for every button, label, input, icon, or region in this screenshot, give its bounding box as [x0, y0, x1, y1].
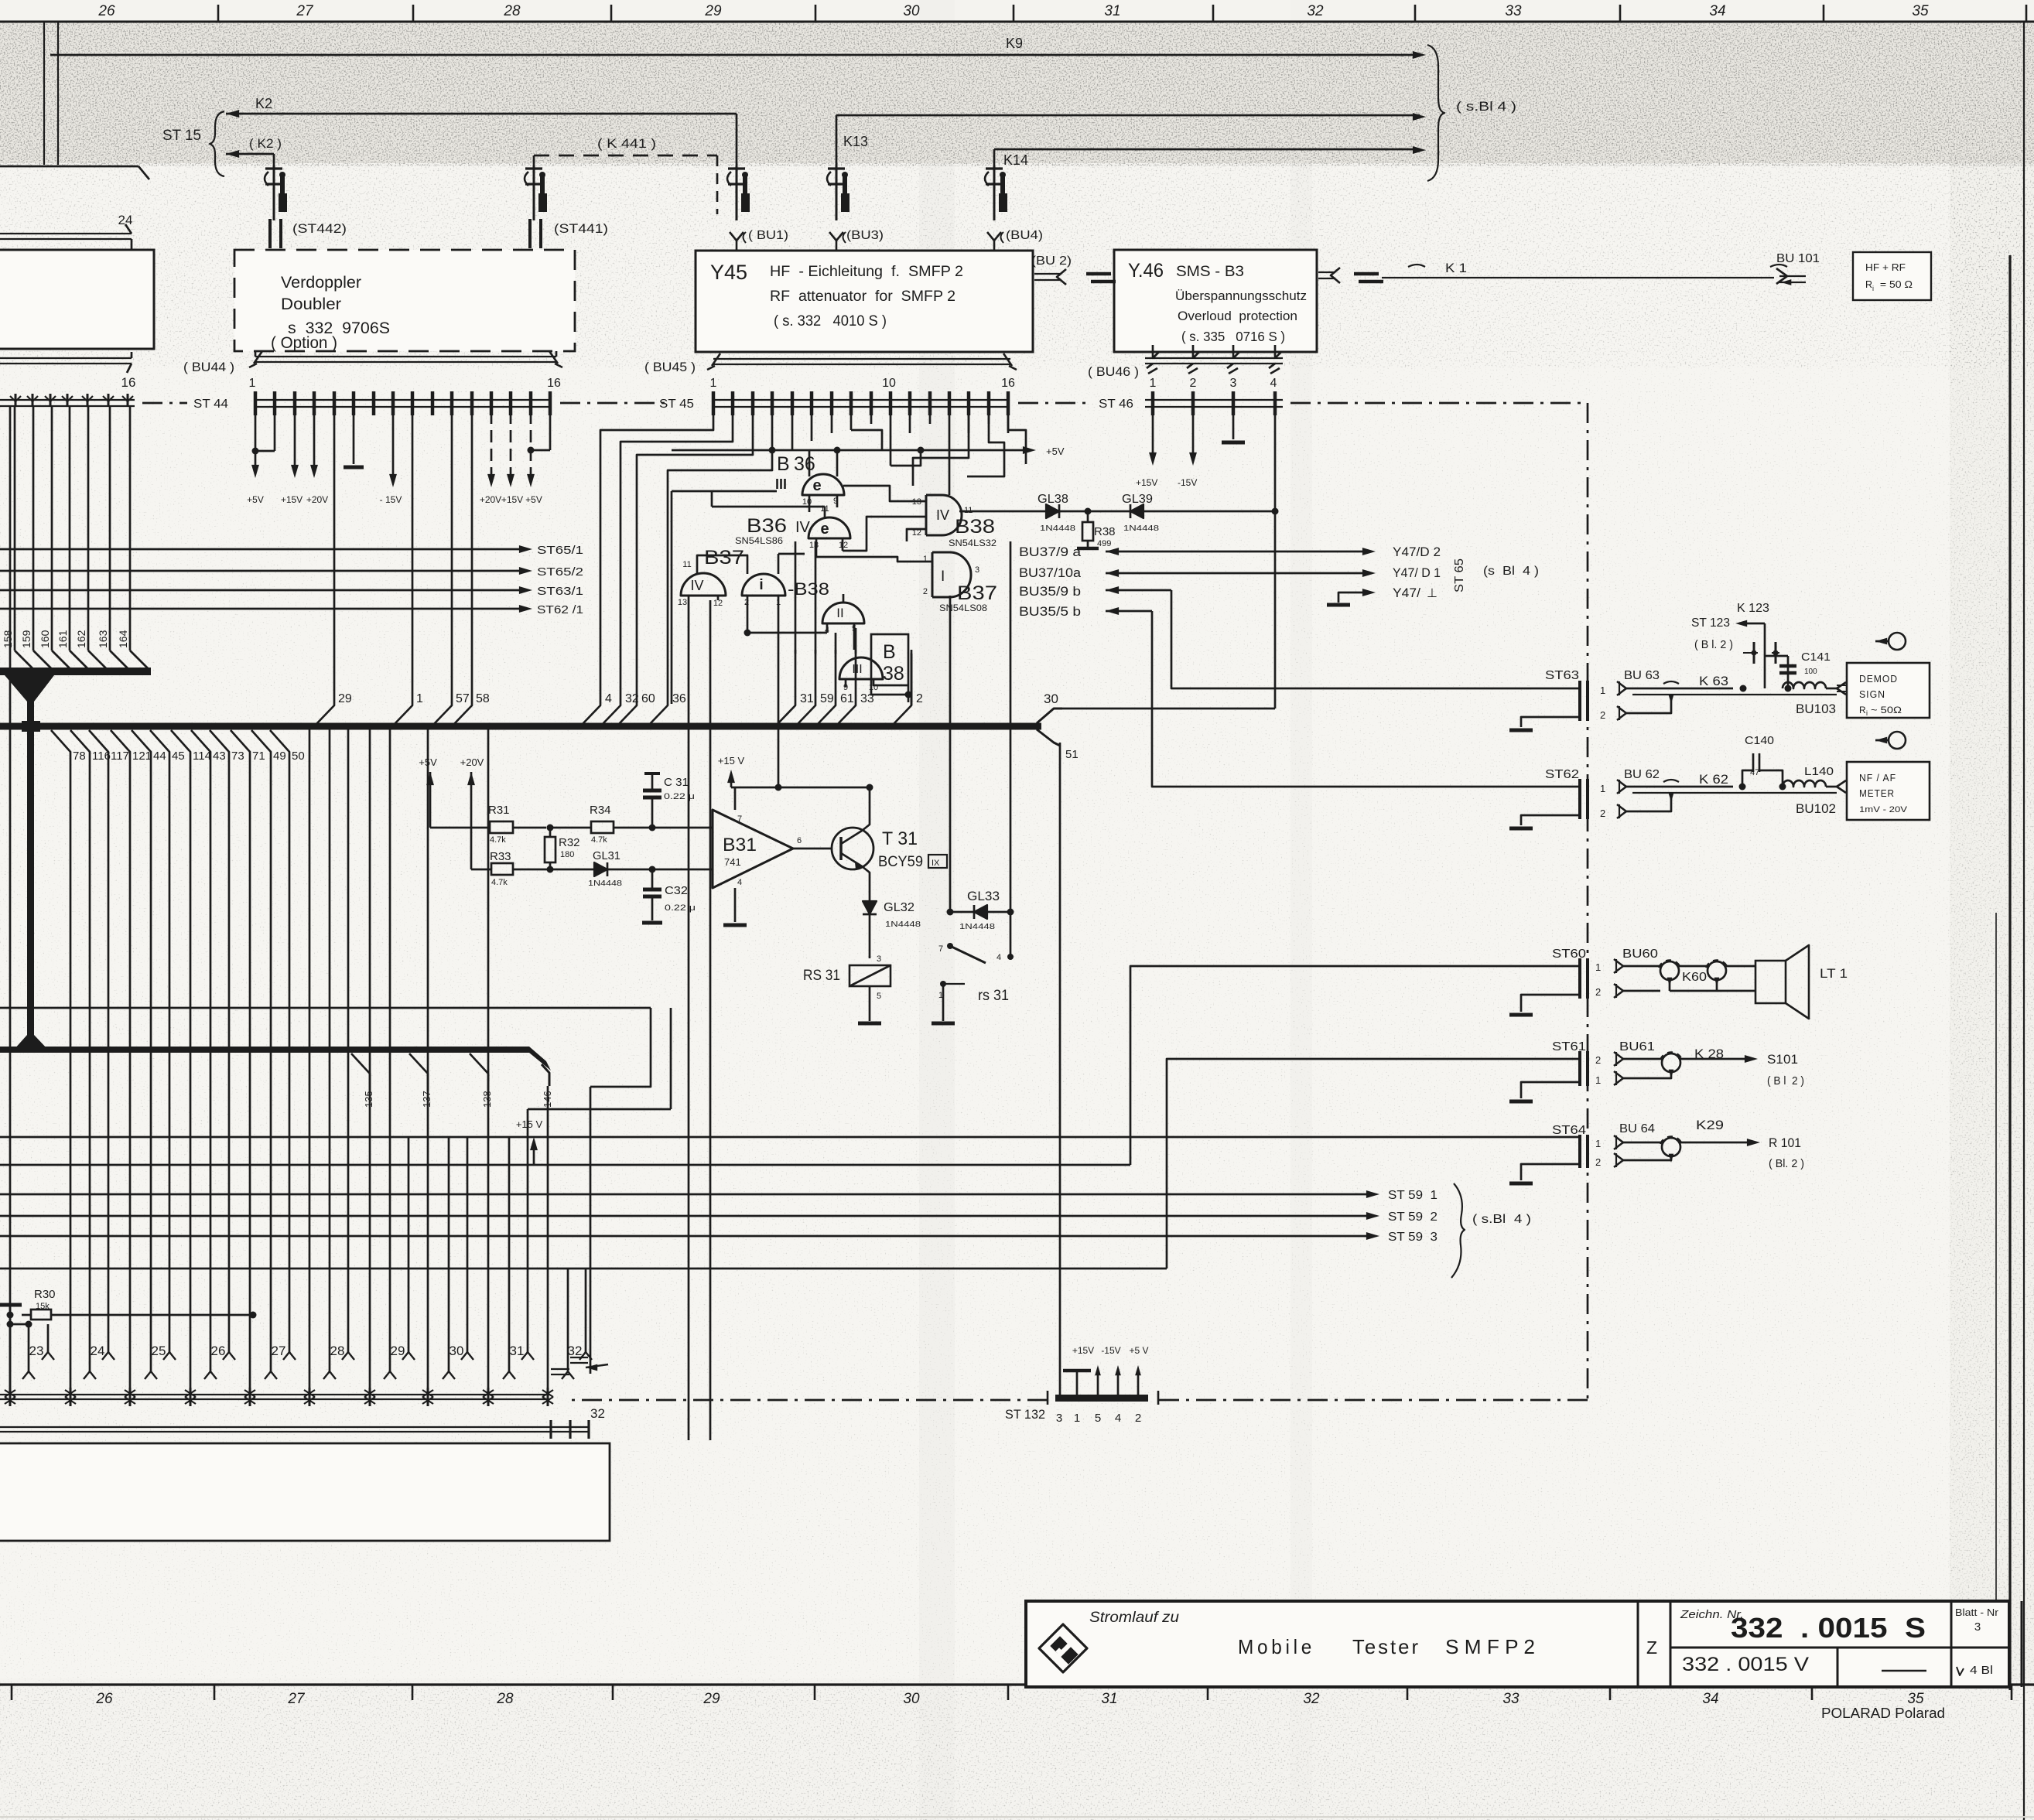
svg-text:0.22 μ: 0.22 μ	[665, 903, 696, 913]
svg-text:164: 164	[117, 630, 129, 648]
svg-text:Y.46: Y.46	[1128, 260, 1164, 282]
svg-text:BU35/5 b: BU35/5 b	[1019, 604, 1081, 619]
svg-text:23: 23	[29, 1344, 44, 1358]
svg-text:32: 32	[1307, 3, 1324, 19]
svg-text:-15V: -15V	[1101, 1345, 1120, 1356]
svg-text:73: 73	[231, 750, 244, 763]
svg-text:II: II	[836, 606, 843, 620]
svg-text:K13: K13	[843, 134, 868, 149]
svg-text:e: e	[820, 521, 829, 538]
svg-text:61: 61	[840, 692, 854, 705]
svg-text:BU35/9 b: BU35/9 b	[1019, 584, 1081, 599]
svg-text:( s.Bl 4 ): ( s.Bl 4 )	[1472, 1213, 1531, 1226]
svg-text:Verdoppler: Verdoppler	[281, 274, 361, 292]
svg-text:SN54LS08: SN54LS08	[939, 604, 987, 613]
svg-text:ST 44: ST 44	[193, 398, 228, 411]
svg-text:R: R	[1865, 279, 1872, 290]
svg-text:III: III	[852, 663, 862, 676]
svg-text:GL32: GL32	[884, 901, 914, 914]
svg-text:LT 1: LT 1	[1820, 966, 1848, 981]
svg-text:3: 3	[975, 565, 979, 575]
svg-text:( BU1): ( BU1)	[748, 229, 788, 242]
svg-text:163: 163	[97, 630, 109, 648]
svg-text:31: 31	[1104, 3, 1120, 19]
svg-text:L140: L140	[1804, 765, 1834, 778]
svg-text:51: 51	[1065, 748, 1079, 761]
svg-text:( K 441 ): ( K 441 )	[597, 136, 656, 151]
svg-text:( B l. 2 ): ( B l. 2 )	[1694, 638, 1733, 651]
svg-text:38: 38	[883, 663, 904, 685]
svg-text:3: 3	[877, 954, 881, 964]
svg-text:IV: IV	[690, 578, 703, 593]
svg-text:T 31: T 31	[882, 828, 918, 849]
svg-text:( s.Bl 4 ): ( s.Bl 4 )	[1456, 99, 1516, 114]
svg-text:2: 2	[1600, 808, 1605, 819]
svg-text:30: 30	[450, 1344, 464, 1358]
svg-text:2: 2	[1595, 986, 1601, 998]
svg-text:C 31: C 31	[664, 776, 689, 789]
svg-text:GL31: GL31	[593, 849, 620, 862]
svg-text:( B l 2 ): ( B l 2 )	[1767, 1074, 1804, 1088]
svg-text:117: 117	[111, 750, 129, 763]
svg-text:Stromlauf zu: Stromlauf zu	[1089, 1610, 1179, 1626]
svg-text:28: 28	[330, 1344, 345, 1358]
svg-text:30: 30	[903, 3, 920, 19]
svg-text:28: 28	[496, 1691, 514, 1707]
svg-text:S M F P 2: S M F P 2	[1445, 1635, 1535, 1658]
svg-text:+20V: +20V	[460, 756, 484, 768]
svg-text:e: e	[812, 477, 821, 494]
svg-text:16: 16	[547, 377, 561, 390]
svg-text:( BU46 ): ( BU46 )	[1088, 364, 1139, 379]
svg-text:K14: K14	[1003, 152, 1028, 168]
svg-text:( K2 ): ( K2 )	[249, 136, 282, 151]
svg-text:30: 30	[1044, 691, 1058, 706]
svg-text:30: 30	[903, 1691, 920, 1707]
svg-text:11: 11	[682, 560, 691, 569]
svg-text:1N4448: 1N4448	[1123, 524, 1159, 533]
svg-text:29: 29	[702, 1691, 720, 1707]
svg-text:4: 4	[1270, 377, 1277, 390]
svg-text:2: 2	[1595, 1156, 1601, 1168]
svg-text:GL33: GL33	[967, 889, 1000, 903]
svg-text:2: 2	[1600, 709, 1605, 721]
svg-text:B31: B31	[723, 835, 757, 855]
svg-text:ST 46: ST 46	[1099, 398, 1133, 411]
svg-text:ST 65: ST 65	[1453, 558, 1466, 592]
svg-text:ST 132: ST 132	[1005, 1407, 1045, 1422]
svg-text:2: 2	[1135, 1412, 1141, 1425]
svg-text:1: 1	[1595, 1074, 1601, 1086]
svg-text:K9: K9	[1006, 36, 1023, 51]
svg-text:(ST442): (ST442)	[292, 221, 347, 236]
svg-text:78: 78	[73, 750, 86, 763]
svg-text:3: 3	[1056, 1412, 1062, 1425]
svg-text:B: B	[883, 641, 896, 663]
svg-text:121: 121	[132, 750, 152, 763]
svg-text:33: 33	[1502, 1691, 1520, 1707]
svg-text:1: 1	[1150, 377, 1157, 390]
svg-text:25: 25	[152, 1344, 166, 1358]
svg-text:+15V: +15V	[501, 494, 523, 505]
svg-text:- 15V: - 15V	[380, 494, 402, 505]
svg-text:HF + RF: HF + RF	[1865, 262, 1906, 273]
svg-text:RS 31: RS 31	[803, 968, 840, 984]
svg-text:57: 57	[456, 692, 470, 705]
svg-text:Doubler: Doubler	[281, 295, 341, 313]
svg-text:27: 27	[287, 1691, 306, 1707]
svg-text:Mobile: Mobile	[1238, 1635, 1315, 1658]
svg-text:BU37/9 a: BU37/9 a	[1019, 545, 1082, 559]
svg-text:+5 V: +5 V	[1129, 1345, 1148, 1356]
svg-text:ST 15: ST 15	[162, 128, 201, 144]
svg-text:71: 71	[252, 750, 265, 763]
svg-text:~ 50Ω: ~ 50Ω	[1871, 705, 1902, 715]
svg-text:33: 33	[1505, 3, 1522, 19]
svg-text:(BU 2): (BU 2)	[1031, 254, 1072, 268]
svg-text:K2: K2	[255, 96, 272, 111]
svg-text:POLARAD Polarad: POLARAD Polarad	[1821, 1706, 1945, 1721]
svg-text:(BU4): (BU4)	[1006, 229, 1043, 242]
svg-text:K 63: K 63	[1699, 674, 1728, 688]
svg-text:2: 2	[916, 692, 923, 705]
svg-text:16: 16	[121, 375, 136, 390]
svg-text:50: 50	[292, 750, 305, 763]
svg-text:44: 44	[153, 750, 166, 763]
svg-text:32: 32	[568, 1344, 583, 1358]
svg-text:+15V: +15V	[1072, 1345, 1094, 1356]
svg-text:35: 35	[1912, 3, 1929, 19]
svg-text:499: 499	[1097, 539, 1111, 548]
svg-text:146: 146	[542, 1091, 553, 1108]
svg-text:BU102: BU102	[1796, 801, 1836, 816]
svg-text:SMS - B3: SMS - B3	[1176, 264, 1244, 280]
svg-text:ST62 /1: ST62 /1	[537, 603, 583, 616]
svg-text:1N4448: 1N4448	[588, 879, 622, 888]
svg-text:180: 180	[560, 850, 574, 859]
svg-text:IX: IX	[932, 859, 940, 868]
svg-text:ST62: ST62	[1545, 768, 1579, 781]
svg-text:58: 58	[476, 692, 490, 705]
svg-text:i: i	[1866, 709, 1868, 717]
svg-text:24: 24	[91, 1344, 105, 1358]
svg-text:( s. 335 0716 S ): ( s. 335 0716 S )	[1181, 329, 1285, 344]
svg-text:3: 3	[1974, 1620, 1981, 1634]
svg-text:( BU44 ): ( BU44 )	[183, 360, 234, 374]
svg-text:2: 2	[1595, 1054, 1601, 1066]
svg-text:SIGN: SIGN	[1859, 688, 1885, 700]
svg-text:BU103: BU103	[1796, 702, 1836, 716]
svg-text:BU61: BU61	[1619, 1040, 1655, 1053]
svg-text:13: 13	[678, 598, 687, 607]
svg-text:49: 49	[273, 750, 286, 763]
svg-text:+15V: +15V	[1136, 477, 1157, 488]
svg-text:( BU45 ): ( BU45 )	[644, 360, 696, 374]
svg-text:( Option ): ( Option )	[271, 334, 337, 352]
svg-text:+20V: +20V	[306, 494, 328, 505]
svg-text:Überspannungsschutz: Überspannungsschutz	[1175, 289, 1307, 303]
svg-text:rs 31: rs 31	[978, 988, 1009, 1004]
svg-text:27: 27	[272, 1344, 286, 1358]
svg-text:27: 27	[296, 3, 314, 19]
svg-text:B: B	[777, 453, 790, 475]
svg-text:4: 4	[996, 953, 1001, 962]
svg-text:+15 V: +15 V	[516, 1118, 543, 1130]
svg-text:BU 62: BU 62	[1624, 768, 1660, 781]
svg-text:⊥: ⊥	[1427, 587, 1437, 600]
svg-text:1: 1	[1600, 783, 1605, 794]
svg-text:i: i	[759, 577, 763, 593]
svg-text:34: 34	[1709, 3, 1725, 19]
svg-text:100: 100	[1804, 668, 1817, 676]
svg-text:741: 741	[724, 856, 741, 868]
svg-text:15k: 15k	[36, 1302, 50, 1311]
svg-text:1N4448: 1N4448	[959, 922, 995, 931]
svg-text:BU37/10a: BU37/10a	[1019, 565, 1082, 580]
svg-text:IV: IV	[936, 507, 949, 523]
svg-text:NF / AF: NF / AF	[1859, 772, 1896, 784]
svg-text:1mV - 20V: 1mV - 20V	[1859, 805, 1908, 814]
svg-text:4: 4	[605, 692, 612, 705]
svg-text:36: 36	[794, 453, 815, 475]
svg-text:RF attenuator for SMFP 2: RF attenuator for SMFP 2	[770, 289, 955, 305]
svg-text:161: 161	[56, 630, 69, 648]
svg-text:2: 2	[923, 587, 928, 596]
svg-text:K 1: K 1	[1445, 261, 1467, 275]
svg-text:135: 135	[363, 1091, 374, 1108]
svg-text:SN54LS86: SN54LS86	[735, 537, 783, 546]
svg-text:26: 26	[95, 1691, 113, 1707]
svg-text:137: 137	[421, 1091, 432, 1108]
svg-text:(BU3): (BU3)	[846, 229, 884, 242]
svg-text:1: 1	[416, 692, 423, 705]
svg-text:Y45: Y45	[710, 261, 747, 284]
svg-text:Blatt - Nr: Blatt - Nr	[1955, 1607, 1999, 1618]
svg-text:B37: B37	[957, 582, 997, 604]
svg-text:R33: R33	[490, 850, 511, 863]
svg-text:32: 32	[590, 1406, 605, 1421]
svg-text:4.7k: 4.7k	[491, 878, 508, 887]
svg-text:K 62: K 62	[1699, 772, 1728, 787]
svg-text:ST63: ST63	[1545, 669, 1579, 682]
svg-text:1: 1	[249, 377, 256, 390]
svg-text:K60: K60	[1682, 971, 1707, 984]
svg-text:4 Bl: 4 Bl	[1970, 1664, 1993, 1677]
svg-text:26: 26	[97, 3, 115, 19]
svg-text:i: i	[1872, 285, 1874, 292]
svg-text:( Bl. 2 ): ( Bl. 2 )	[1769, 1157, 1804, 1170]
svg-text:4: 4	[1115, 1412, 1121, 1425]
svg-text:0.22 μ: 0.22 μ	[664, 792, 695, 801]
svg-text:35: 35	[1907, 1691, 1924, 1707]
svg-text:+5V: +5V	[419, 756, 437, 768]
svg-text:R38: R38	[1094, 525, 1116, 538]
svg-text:138: 138	[481, 1091, 493, 1108]
svg-text:BU60: BU60	[1622, 948, 1658, 961]
svg-text:ST65/2: ST65/2	[537, 565, 583, 579]
svg-text:36: 36	[672, 692, 686, 705]
svg-text:-15V: -15V	[1178, 477, 1197, 488]
svg-text:4.7k: 4.7k	[490, 835, 506, 845]
svg-text:+15V: +15V	[281, 494, 303, 505]
svg-text:332 . 0015 V: 332 . 0015 V	[1682, 1654, 1809, 1675]
svg-text:HF - Eichleitung f. SMFP 2: HF - Eichleitung f. SMFP 2	[770, 264, 963, 280]
svg-text:159: 159	[20, 630, 32, 648]
svg-text:GL38: GL38	[1038, 493, 1068, 506]
svg-text:ST65/1: ST65/1	[537, 544, 583, 557]
svg-text:47: 47	[1750, 768, 1759, 777]
svg-text:Overloud protection: Overloud protection	[1178, 309, 1297, 323]
svg-text:B37: B37	[704, 547, 744, 569]
svg-text:SN54LS32: SN54LS32	[949, 539, 996, 548]
svg-text:4.7k: 4.7k	[591, 835, 607, 845]
svg-text:DEMOD: DEMOD	[1859, 673, 1898, 685]
svg-text:31: 31	[1101, 1691, 1117, 1707]
svg-text:R 101: R 101	[1769, 1135, 1801, 1150]
svg-text:6: 6	[797, 836, 802, 845]
svg-text:16: 16	[1001, 377, 1015, 390]
svg-text:1N4448: 1N4448	[1040, 524, 1075, 533]
svg-text:+20V: +20V	[480, 494, 501, 505]
svg-text:26: 26	[211, 1344, 226, 1358]
svg-text:60: 60	[641, 692, 655, 705]
svg-text:1: 1	[1595, 961, 1601, 973]
svg-text:+15 V: +15 V	[718, 755, 745, 767]
svg-text:10: 10	[882, 377, 896, 390]
svg-text:R32: R32	[559, 836, 580, 849]
svg-text:59: 59	[820, 692, 834, 705]
svg-text:1N4448: 1N4448	[885, 920, 921, 929]
svg-text:-B38: -B38	[788, 579, 829, 599]
svg-text:29: 29	[338, 692, 352, 705]
svg-text:K29: K29	[1696, 1118, 1724, 1132]
svg-text:34: 34	[1702, 1691, 1718, 1707]
svg-text:GL39: GL39	[1122, 493, 1153, 506]
svg-text:R34: R34	[590, 804, 611, 817]
svg-text:BU 101: BU 101	[1776, 252, 1820, 265]
svg-text:+5V: +5V	[525, 494, 542, 505]
svg-text:I: I	[941, 569, 945, 585]
svg-text:31: 31	[510, 1344, 525, 1358]
svg-text:29: 29	[391, 1344, 405, 1358]
svg-text:K 123: K 123	[1737, 602, 1769, 615]
svg-text:ST 45: ST 45	[659, 398, 694, 411]
svg-text:5: 5	[1095, 1412, 1101, 1425]
svg-text:(s Bl 4 ): (s Bl 4 )	[1483, 565, 1539, 578]
svg-text:332 . 0015 S: 332 . 0015 S	[1731, 1612, 1926, 1644]
svg-text:3: 3	[1230, 377, 1237, 390]
svg-text:2: 2	[1190, 377, 1197, 390]
svg-text:Y47/: Y47/	[1393, 586, 1420, 600]
svg-text:B36: B36	[747, 515, 787, 537]
svg-text:29: 29	[704, 3, 722, 19]
svg-text:1: 1	[710, 377, 717, 390]
svg-text:Tester: Tester	[1352, 1635, 1420, 1658]
svg-text:BU 64: BU 64	[1619, 1122, 1655, 1135]
svg-text:BU 63: BU 63	[1624, 669, 1660, 682]
svg-text:Y47/D 2: Y47/D 2	[1393, 545, 1441, 559]
svg-text:31: 31	[800, 692, 814, 705]
svg-text:+5V: +5V	[247, 494, 264, 505]
svg-text:C140: C140	[1745, 734, 1774, 747]
svg-text:Y47/ D 1: Y47/ D 1	[1393, 565, 1441, 580]
svg-text:= 50 Ω: = 50 Ω	[1877, 279, 1913, 290]
svg-text:32: 32	[1303, 1691, 1320, 1707]
svg-text:Z: Z	[1646, 1637, 1657, 1658]
svg-text:IV: IV	[795, 519, 811, 536]
svg-text:(ST441): (ST441)	[554, 221, 608, 236]
svg-text:R31: R31	[488, 804, 510, 817]
svg-text:43: 43	[213, 750, 226, 763]
svg-text:ST 123: ST 123	[1691, 616, 1730, 630]
svg-text:S101: S101	[1767, 1052, 1798, 1067]
svg-text:1: 1	[1074, 1412, 1080, 1425]
svg-text:ST 59 1: ST 59 1	[1388, 1189, 1437, 1202]
svg-text:R30: R30	[34, 1288, 56, 1301]
svg-text:( s. 332 4010 S ): ( s. 332 4010 S )	[774, 313, 887, 330]
svg-text:METER: METER	[1859, 787, 1895, 799]
svg-text:4: 4	[737, 878, 742, 887]
svg-text:R: R	[1859, 705, 1866, 715]
svg-text:28: 28	[503, 3, 521, 19]
svg-text:7: 7	[737, 814, 742, 824]
svg-text:5: 5	[877, 992, 881, 1001]
svg-text:ST 59 2: ST 59 2	[1388, 1210, 1437, 1224]
svg-text:160: 160	[39, 630, 51, 648]
svg-text:BCY59: BCY59	[878, 854, 923, 870]
svg-text:114: 114	[193, 750, 211, 763]
svg-text:158: 158	[2, 630, 14, 648]
svg-text:45: 45	[172, 750, 185, 763]
svg-text:+5V: +5V	[1046, 446, 1065, 457]
svg-text:1: 1	[1595, 1138, 1601, 1149]
svg-text:B38: B38	[955, 516, 995, 538]
svg-text:III: III	[775, 476, 787, 492]
svg-text:24: 24	[118, 213, 133, 227]
svg-text:162: 162	[75, 630, 87, 648]
svg-text:ST 59 3: ST 59 3	[1388, 1231, 1437, 1244]
svg-text:C32: C32	[665, 884, 688, 897]
svg-text:C141: C141	[1801, 650, 1831, 664]
svg-text:1: 1	[1600, 685, 1605, 696]
svg-text:7: 7	[938, 944, 943, 954]
svg-text:ST63/1: ST63/1	[537, 585, 583, 598]
